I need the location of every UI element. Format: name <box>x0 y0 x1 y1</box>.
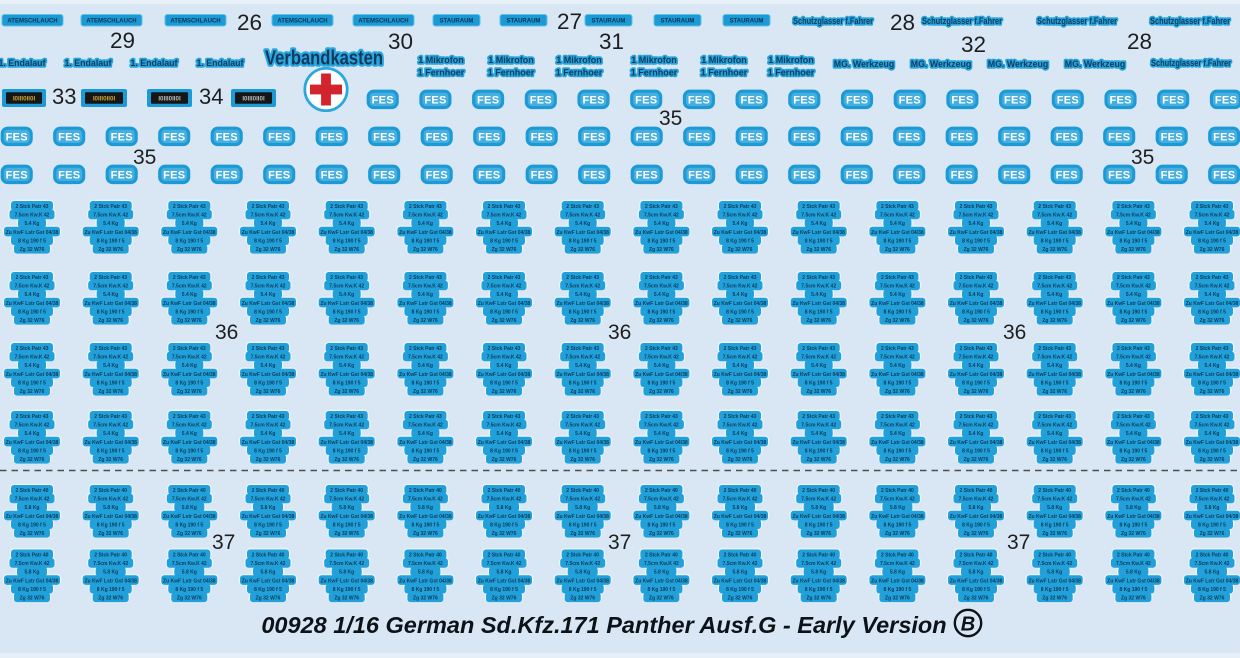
svg-text:Schutzglasser f.Fahrer: Schutzglasser f.Fahrer <box>922 16 1002 26</box>
svg-text:ATEMSCHLAUCH: ATEMSCHLAUCH <box>358 18 408 24</box>
svg-text:00928 1/16 German Sd.Kfz.171 P: 00928 1/16 German Sd.Kfz.171 Panther Aus… <box>261 612 946 638</box>
svg-text:1. Endalauf: 1. Endalauf <box>197 58 244 68</box>
svg-text:ATEMSCHLAUCH: ATEMSCHLAUCH <box>86 18 136 24</box>
svg-text:1 Mikrofon: 1 Mikrofon <box>418 55 464 65</box>
svg-text:ATEMSCHLAUCH: ATEMSCHLAUCH <box>7 18 57 24</box>
svg-text:35: 35 <box>133 146 156 169</box>
svg-text:I0III0II0I: I0III0II0I <box>158 96 181 103</box>
svg-text:ATEMSCHLAUCH: ATEMSCHLAUCH <box>170 18 220 24</box>
svg-text:1 Fernhoer: 1 Fernhoer <box>631 68 678 78</box>
svg-text:Schutzglasser f.Fahrer: Schutzglasser f.Fahrer <box>1037 16 1117 26</box>
svg-text:STAURAUM: STAURAUM <box>730 18 764 24</box>
svg-text:MG. Werkzeug: MG. Werkzeug <box>1065 59 1125 69</box>
svg-text:1 Mikrofon: 1 Mikrofon <box>768 55 814 65</box>
svg-text:34: 34 <box>199 84 223 109</box>
svg-text:33: 33 <box>52 84 76 109</box>
svg-text:B: B <box>961 614 975 636</box>
svg-text:1 Fernhoer: 1 Fernhoer <box>768 68 815 78</box>
svg-text:28: 28 <box>1127 29 1152 54</box>
svg-text:37: 37 <box>212 531 235 554</box>
svg-text:28: 28 <box>890 10 915 35</box>
svg-text:30: 30 <box>388 29 413 54</box>
svg-text:MG. Werkzeug: MG. Werkzeug <box>911 59 971 69</box>
svg-text:MG. Werkzeug: MG. Werkzeug <box>834 59 894 69</box>
svg-text:1 Mikrofon: 1 Mikrofon <box>631 55 677 65</box>
svg-text:1 Mikrofon: 1 Mikrofon <box>488 55 534 65</box>
svg-text:1. Endalauf: 1. Endalauf <box>131 58 178 68</box>
svg-text:Schutzglasser f.Fahrer: Schutzglasser f.Fahrer <box>793 16 873 26</box>
svg-text:STAURAUM: STAURAUM <box>592 18 626 24</box>
svg-text:36: 36 <box>1003 321 1026 344</box>
svg-text:I0III0II0I: I0III0II0I <box>93 96 116 103</box>
svg-text:26: 26 <box>237 10 262 35</box>
svg-text:STAURAUM: STAURAUM <box>661 18 695 24</box>
svg-text:36: 36 <box>215 321 238 344</box>
svg-text:STAURAUM: STAURAUM <box>440 18 474 24</box>
svg-text:31: 31 <box>599 29 624 54</box>
svg-text:Schutzglasser f.Fahrer: Schutzglasser f.Fahrer <box>1150 16 1230 26</box>
svg-text:Verbandkasten: Verbandkasten <box>265 48 383 70</box>
svg-text:1 Fernhoer: 1 Fernhoer <box>488 68 535 78</box>
svg-text:36: 36 <box>608 321 631 344</box>
svg-text:35: 35 <box>1131 146 1154 169</box>
svg-text:Schutzglasser f.Fahrer: Schutzglasser f.Fahrer <box>1151 58 1231 68</box>
svg-text:MG. Werkzeug: MG. Werkzeug <box>988 59 1048 69</box>
svg-text:32: 32 <box>961 32 986 57</box>
svg-text:35: 35 <box>659 107 682 130</box>
svg-text:1. Endalauf: 1. Endalauf <box>65 58 112 68</box>
svg-text:37: 37 <box>608 531 631 554</box>
svg-text:1 Fernhoer: 1 Fernhoer <box>418 68 465 78</box>
svg-text:1 Fernhoer: 1 Fernhoer <box>701 68 748 78</box>
svg-text:ATEMSCHLAUCH: ATEMSCHLAUCH <box>277 18 327 24</box>
svg-text:1 Mikrofon: 1 Mikrofon <box>556 55 602 65</box>
svg-text:37: 37 <box>1007 531 1030 554</box>
svg-text:27: 27 <box>557 9 582 34</box>
svg-text:I0III0II0I: I0III0II0I <box>13 96 36 103</box>
svg-text:1 Mikrofon: 1 Mikrofon <box>701 55 747 65</box>
svg-text:1. Endalauf: 1. Endalauf <box>0 58 46 68</box>
svg-text:29: 29 <box>110 28 135 53</box>
svg-text:STAURAUM: STAURAUM <box>507 18 541 24</box>
svg-text:I0III0II0I: I0III0II0I <box>242 96 265 103</box>
svg-text:1 Fernhoer: 1 Fernhoer <box>556 68 603 78</box>
